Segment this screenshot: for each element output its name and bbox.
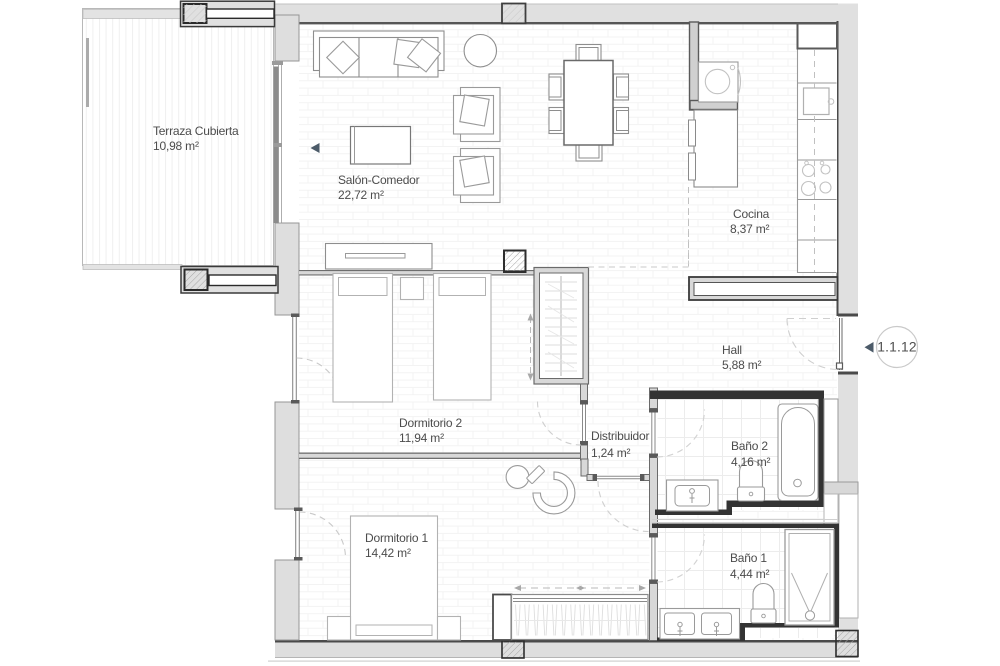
- svg-text:11,94 m²: 11,94 m²: [399, 431, 444, 445]
- svg-text:10,98 m²: 10,98 m²: [153, 139, 199, 153]
- svg-text:Terraza Cubierta: Terraza Cubierta: [153, 124, 239, 138]
- svg-text:8,37 m²: 8,37 m²: [730, 222, 769, 236]
- svg-text:Baño 1: Baño 1: [730, 551, 767, 565]
- svg-text:1,24 m²: 1,24 m²: [591, 446, 630, 460]
- svg-text:4,44 m²: 4,44 m²: [730, 567, 769, 581]
- svg-text:Cocina: Cocina: [733, 207, 770, 221]
- svg-text:Baño 2: Baño 2: [731, 439, 768, 453]
- svg-text:Salón-Comedor: Salón-Comedor: [338, 173, 420, 187]
- svg-text:4,16 m²: 4,16 m²: [731, 455, 770, 469]
- svg-text:Hall: Hall: [722, 343, 742, 357]
- svg-text:5,88 m²: 5,88 m²: [722, 358, 761, 372]
- svg-text:22,72 m²: 22,72 m²: [338, 188, 384, 202]
- svg-text:1.1.12: 1.1.12: [877, 340, 917, 355]
- svg-text:Dormitorio 1: Dormitorio 1: [365, 531, 428, 545]
- svg-text:Distribuidor: Distribuidor: [591, 429, 649, 443]
- svg-text:14,42 m²: 14,42 m²: [365, 546, 411, 560]
- svg-text:Dormitorio 2: Dormitorio 2: [399, 416, 462, 430]
